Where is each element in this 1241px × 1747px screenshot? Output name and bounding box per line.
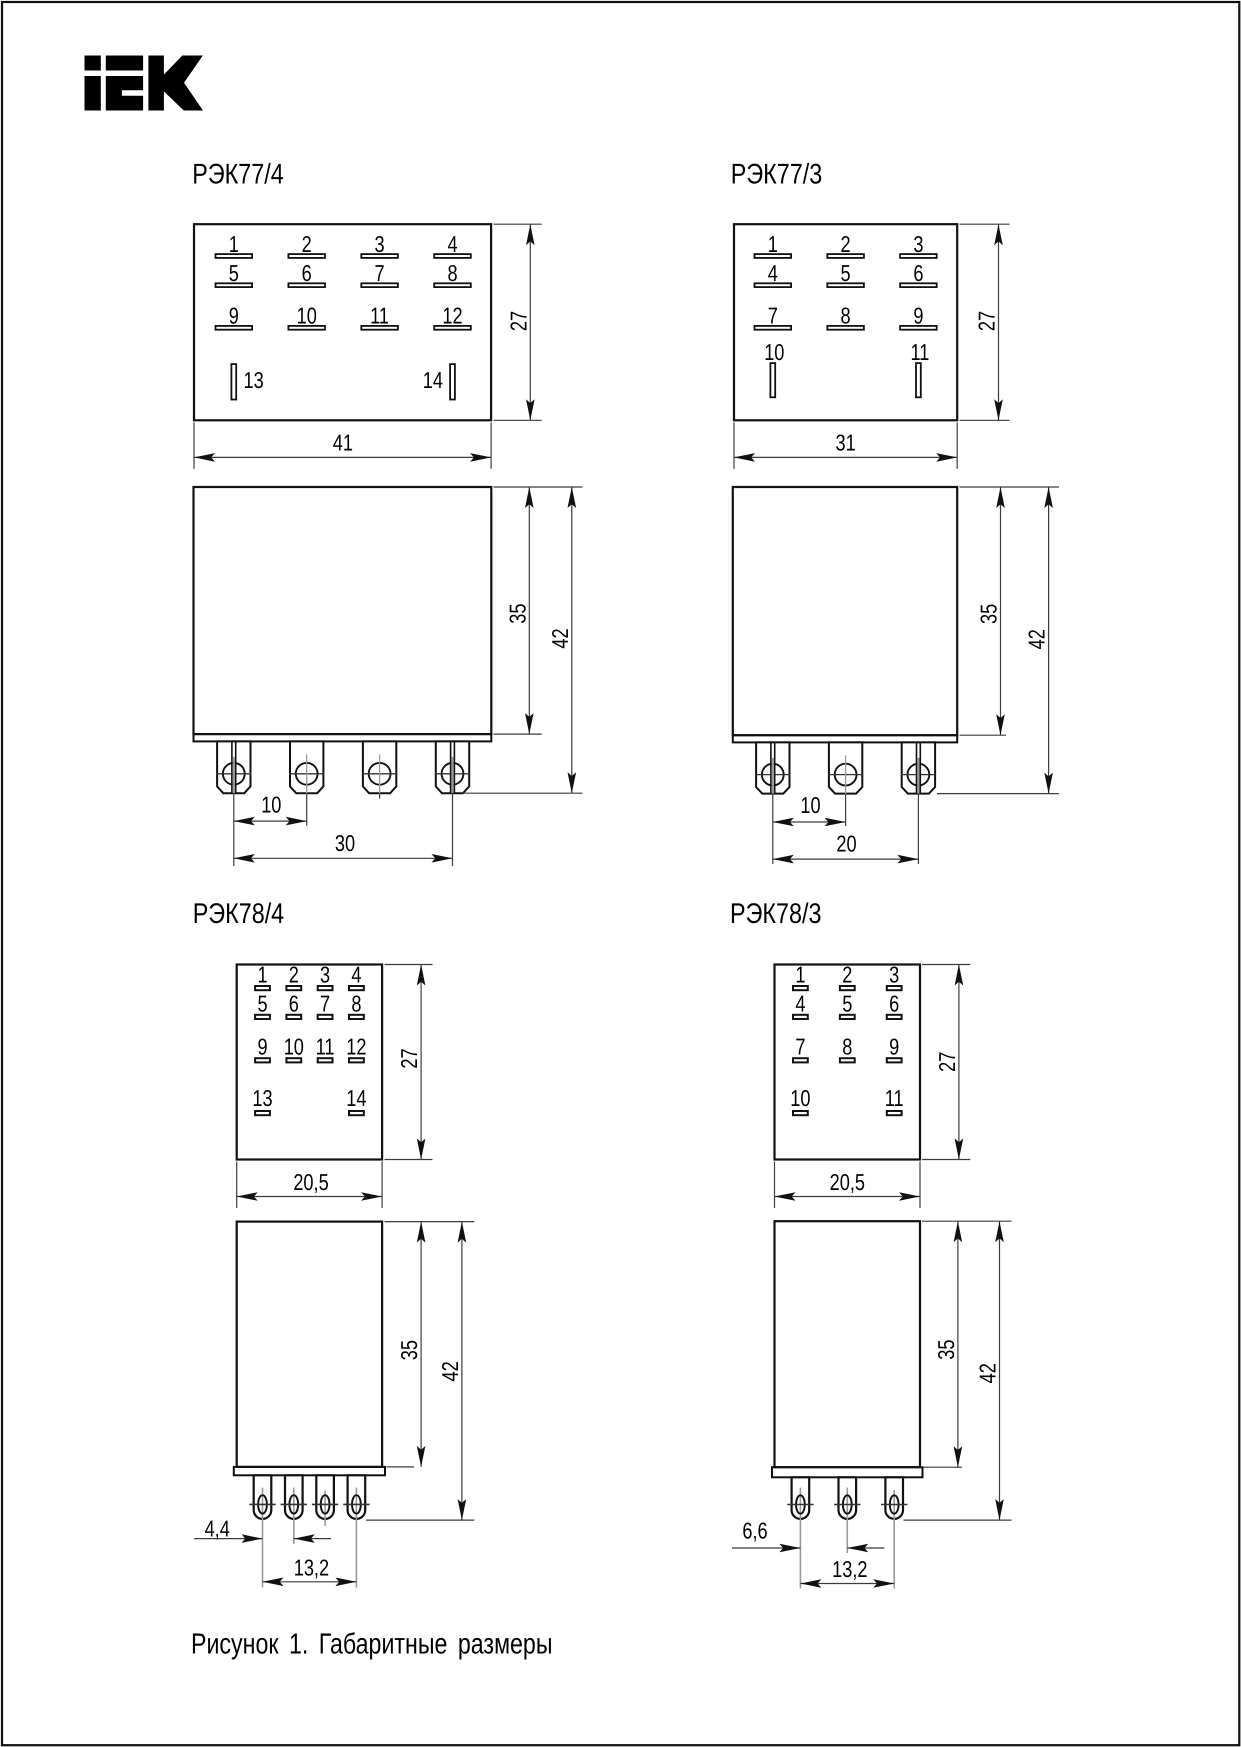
svg-text:РЭК78/4: РЭК78/4 bbox=[193, 898, 285, 930]
svg-text:31: 31 bbox=[835, 430, 855, 456]
svg-text:5: 5 bbox=[257, 990, 267, 1016]
svg-text:4,4: 4,4 bbox=[205, 1516, 230, 1542]
svg-text:27: 27 bbox=[396, 1048, 422, 1068]
svg-text:8: 8 bbox=[447, 260, 457, 286]
svg-text:41: 41 bbox=[333, 430, 353, 456]
svg-text:6: 6 bbox=[302, 260, 312, 286]
svg-text:13: 13 bbox=[244, 367, 264, 393]
svg-text:РЭК77/3: РЭК77/3 bbox=[731, 159, 822, 191]
svg-text:20: 20 bbox=[836, 831, 856, 857]
svg-text:4: 4 bbox=[351, 962, 361, 988]
svg-text:4: 4 bbox=[795, 990, 805, 1016]
svg-text:5: 5 bbox=[842, 990, 852, 1016]
svg-text:6: 6 bbox=[289, 990, 299, 1016]
svg-text:7: 7 bbox=[320, 990, 330, 1016]
svg-text:35: 35 bbox=[504, 603, 530, 623]
svg-text:14: 14 bbox=[423, 367, 443, 393]
svg-text:9: 9 bbox=[889, 1034, 899, 1060]
svg-text:3: 3 bbox=[320, 962, 330, 988]
svg-text:7: 7 bbox=[795, 1034, 805, 1060]
svg-text:1: 1 bbox=[795, 962, 805, 988]
svg-text:42: 42 bbox=[975, 1363, 1001, 1383]
svg-text:10: 10 bbox=[790, 1085, 810, 1111]
svg-text:9: 9 bbox=[257, 1034, 267, 1060]
svg-text:11: 11 bbox=[910, 339, 929, 365]
svg-text:42: 42 bbox=[437, 1361, 463, 1381]
svg-text:3: 3 bbox=[913, 231, 923, 257]
svg-text:2: 2 bbox=[841, 231, 851, 257]
svg-text:5: 5 bbox=[229, 260, 239, 286]
svg-text:6,6: 6,6 bbox=[742, 1518, 767, 1544]
svg-text:11: 11 bbox=[370, 303, 389, 329]
svg-text:2: 2 bbox=[289, 962, 299, 988]
svg-text:1: 1 bbox=[768, 231, 778, 257]
svg-text:1: 1 bbox=[257, 962, 267, 988]
svg-text:11: 11 bbox=[885, 1085, 904, 1111]
svg-text:42: 42 bbox=[1024, 629, 1050, 649]
svg-text:35: 35 bbox=[933, 1339, 959, 1359]
svg-text:1: 1 bbox=[229, 231, 239, 257]
svg-text:3: 3 bbox=[889, 962, 899, 988]
svg-text:2: 2 bbox=[842, 962, 852, 988]
svg-text:5: 5 bbox=[841, 260, 851, 286]
svg-text:35: 35 bbox=[396, 1340, 422, 1360]
svg-text:8: 8 bbox=[351, 990, 361, 1016]
svg-text:8: 8 bbox=[841, 303, 851, 329]
svg-text:27: 27 bbox=[974, 311, 1000, 331]
svg-text:4: 4 bbox=[447, 231, 457, 257]
svg-text:6: 6 bbox=[913, 260, 923, 286]
svg-text:27: 27 bbox=[505, 311, 531, 331]
svg-text:10: 10 bbox=[297, 303, 317, 329]
svg-text:6: 6 bbox=[889, 990, 899, 1016]
svg-text:20,5: 20,5 bbox=[830, 1169, 865, 1195]
svg-text:12: 12 bbox=[442, 303, 462, 329]
svg-text:РЭК78/3: РЭК78/3 bbox=[730, 898, 821, 930]
svg-text:РЭК77/4: РЭК77/4 bbox=[192, 159, 284, 191]
svg-text:30: 30 bbox=[335, 830, 355, 856]
svg-text:9: 9 bbox=[229, 303, 239, 329]
svg-text:10: 10 bbox=[284, 1034, 304, 1060]
svg-text:20,5: 20,5 bbox=[293, 1169, 328, 1195]
svg-text:10: 10 bbox=[764, 339, 784, 365]
svg-text:4: 4 bbox=[768, 260, 778, 286]
svg-text:12: 12 bbox=[346, 1034, 366, 1060]
svg-text:2: 2 bbox=[302, 231, 312, 257]
svg-text:Рисунок 1. Габаритные размеры: Рисунок 1. Габаритные размеры bbox=[191, 1629, 553, 1661]
svg-text:11: 11 bbox=[316, 1034, 335, 1060]
svg-text:7: 7 bbox=[375, 260, 385, 286]
svg-text:42: 42 bbox=[547, 628, 573, 648]
svg-text:8: 8 bbox=[842, 1034, 852, 1060]
svg-text:9: 9 bbox=[913, 303, 923, 329]
svg-text:13,2: 13,2 bbox=[832, 1556, 867, 1582]
svg-text:35: 35 bbox=[976, 604, 1002, 624]
svg-text:3: 3 bbox=[375, 231, 385, 257]
svg-text:14: 14 bbox=[346, 1085, 366, 1111]
svg-text:13: 13 bbox=[252, 1085, 272, 1111]
svg-text:13,2: 13,2 bbox=[294, 1554, 329, 1580]
svg-text:7: 7 bbox=[768, 303, 778, 329]
svg-text:10: 10 bbox=[800, 792, 820, 818]
svg-text:27: 27 bbox=[934, 1052, 960, 1072]
svg-text:10: 10 bbox=[261, 791, 281, 817]
